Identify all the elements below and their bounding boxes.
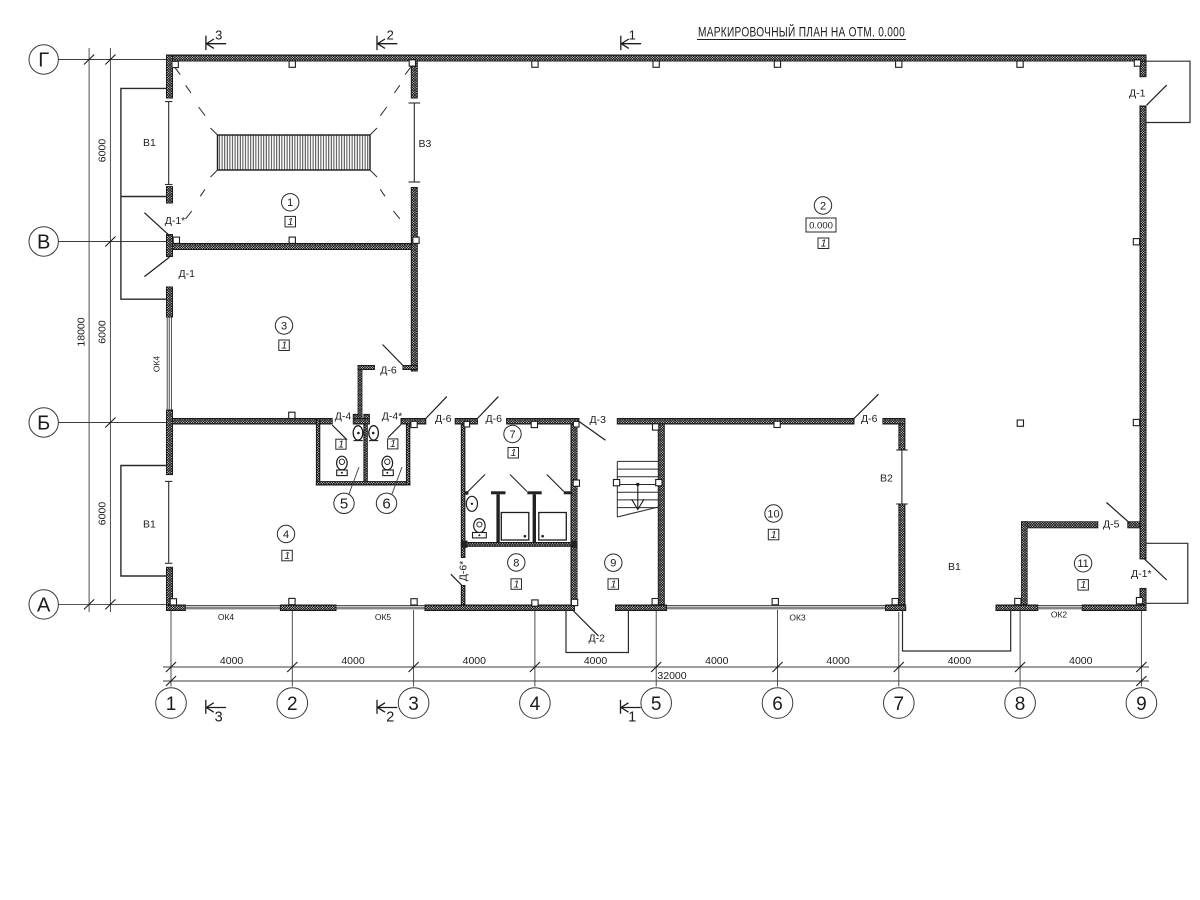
svg-text:4000: 4000	[463, 655, 487, 667]
svg-text:1: 1	[284, 550, 290, 562]
svg-text:0.000: 0.000	[809, 221, 833, 232]
svg-text:Д-4: Д-4	[335, 410, 352, 422]
svg-text:4000: 4000	[705, 655, 729, 667]
svg-text:3: 3	[408, 694, 419, 715]
svg-text:В2: В2	[880, 473, 893, 485]
svg-text:В1: В1	[143, 137, 156, 149]
svg-text:1: 1	[287, 197, 293, 209]
svg-text:Д-6: Д-6	[861, 413, 878, 425]
svg-text:4000: 4000	[826, 655, 850, 667]
svg-text:2: 2	[287, 694, 298, 715]
svg-text:7: 7	[509, 429, 515, 441]
svg-text:1: 1	[610, 578, 616, 590]
svg-text:4000: 4000	[1069, 655, 1093, 667]
svg-text:Д-3: Д-3	[590, 414, 607, 426]
svg-text:4: 4	[283, 529, 289, 541]
svg-text:4: 4	[530, 694, 541, 715]
svg-text:ОК3: ОК3	[789, 613, 806, 623]
svg-text:3: 3	[281, 320, 287, 332]
svg-text:4000: 4000	[341, 655, 365, 667]
svg-text:1: 1	[628, 710, 636, 726]
svg-text:8: 8	[513, 557, 519, 569]
svg-text:ОК5: ОК5	[375, 612, 392, 622]
svg-text:1: 1	[287, 216, 293, 228]
svg-text:2: 2	[820, 200, 826, 212]
svg-text:1: 1	[821, 238, 827, 250]
svg-text:6: 6	[772, 694, 783, 715]
svg-text:Д-2: Д-2	[589, 633, 606, 645]
svg-text:Д-6: Д-6	[486, 413, 503, 425]
svg-text:6: 6	[382, 496, 390, 513]
svg-text:4000: 4000	[220, 655, 244, 667]
svg-text:Д-1*: Д-1*	[1131, 568, 1152, 580]
svg-text:Б: Б	[37, 413, 50, 435]
svg-text:Д-4*: Д-4*	[382, 410, 403, 422]
svg-text:7: 7	[894, 694, 905, 715]
svg-text:1: 1	[390, 438, 396, 450]
svg-text:В1: В1	[143, 519, 156, 531]
svg-text:11: 11	[1077, 558, 1088, 570]
svg-text:Д-6: Д-6	[380, 365, 397, 377]
svg-text:4000: 4000	[584, 655, 608, 667]
svg-text:10: 10	[767, 508, 779, 520]
svg-text:1: 1	[1080, 579, 1086, 591]
svg-text:Д-1: Д-1	[1129, 87, 1146, 99]
svg-text:1: 1	[771, 529, 777, 541]
svg-text:МАРКИРОВОЧНЫЙ ПЛАН НА ОТМ. 0.0: МАРКИРОВОЧНЫЙ ПЛАН НА ОТМ. 0.000	[698, 22, 905, 39]
svg-text:2: 2	[386, 710, 394, 726]
svg-text:Д-1: Д-1	[179, 268, 196, 280]
svg-text:6000: 6000	[97, 139, 109, 163]
svg-text:Д-5: Д-5	[1103, 519, 1120, 531]
svg-text:1: 1	[510, 447, 516, 459]
svg-text:9: 9	[610, 558, 616, 570]
svg-text:А: А	[37, 595, 51, 617]
svg-text:32000: 32000	[657, 670, 686, 682]
svg-text:В1: В1	[948, 561, 961, 573]
svg-text:В: В	[37, 232, 50, 254]
svg-text:18000: 18000	[76, 317, 88, 346]
svg-text:9: 9	[1136, 694, 1147, 715]
svg-text:5: 5	[340, 496, 348, 513]
svg-text:3: 3	[215, 27, 222, 42]
svg-text:ОК2: ОК2	[1051, 610, 1068, 620]
svg-text:Д-6*: Д-6*	[458, 561, 470, 582]
svg-text:2: 2	[387, 27, 394, 42]
svg-text:Г: Г	[38, 50, 49, 72]
svg-text:ОК4: ОК4	[152, 356, 162, 373]
svg-text:6000: 6000	[97, 502, 109, 526]
svg-text:6000: 6000	[97, 320, 109, 344]
svg-text:Д-1*: Д-1*	[165, 215, 186, 227]
svg-text:3: 3	[215, 710, 223, 726]
svg-text:Д-6: Д-6	[435, 413, 452, 425]
svg-text:5: 5	[651, 694, 662, 715]
svg-text:В3: В3	[419, 138, 432, 150]
svg-text:ОК4: ОК4	[218, 612, 235, 622]
svg-text:1: 1	[281, 340, 287, 352]
svg-text:8: 8	[1015, 694, 1026, 715]
svg-text:1: 1	[338, 438, 344, 450]
svg-text:1: 1	[166, 694, 177, 715]
svg-text:1: 1	[629, 27, 636, 42]
svg-text:4000: 4000	[948, 655, 972, 667]
svg-text:1: 1	[513, 578, 519, 590]
